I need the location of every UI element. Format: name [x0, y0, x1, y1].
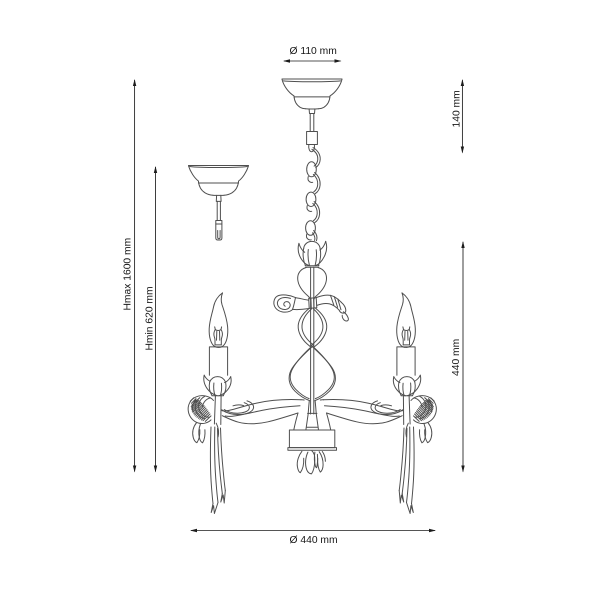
svg-text:140 mm: 140 mm — [451, 90, 462, 127]
svg-text:440 mm: 440 mm — [451, 339, 462, 376]
svg-text:Hmax 1600 mm: Hmax 1600 mm — [123, 238, 134, 311]
svg-text:Ø 110 mm: Ø 110 mm — [290, 46, 337, 57]
svg-text:Ø 440 mm: Ø 440 mm — [290, 535, 338, 546]
svg-text:Hmin 620 mm: Hmin 620 mm — [145, 286, 156, 350]
